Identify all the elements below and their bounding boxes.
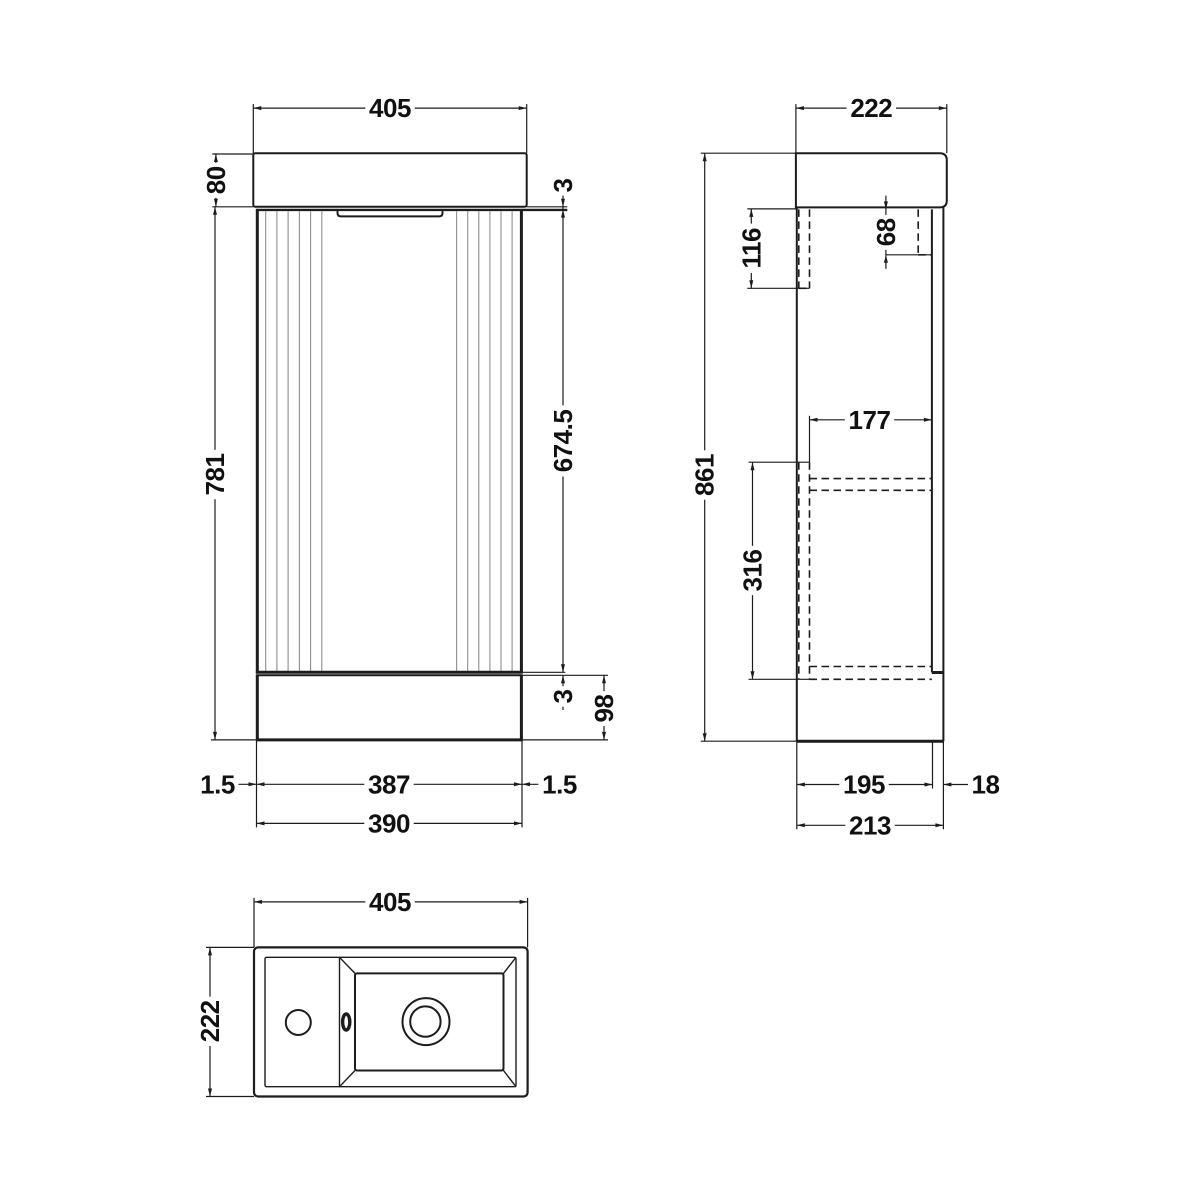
svg-text:195: 195 xyxy=(843,770,885,800)
svg-text:222: 222 xyxy=(195,1000,225,1042)
svg-text:390: 390 xyxy=(368,808,410,838)
svg-text:116: 116 xyxy=(736,228,766,268)
svg-text:1.5: 1.5 xyxy=(542,769,577,799)
svg-text:3: 3 xyxy=(548,689,578,703)
svg-text:387: 387 xyxy=(368,769,410,799)
svg-text:1.5: 1.5 xyxy=(200,769,235,799)
svg-text:18: 18 xyxy=(972,770,1000,800)
svg-text:80: 80 xyxy=(201,166,231,194)
svg-text:98: 98 xyxy=(589,695,619,723)
svg-text:674.5: 674.5 xyxy=(548,410,578,473)
svg-text:177: 177 xyxy=(849,405,891,435)
svg-text:222: 222 xyxy=(850,93,892,123)
svg-text:781: 781 xyxy=(200,454,230,496)
svg-text:213: 213 xyxy=(849,810,891,840)
svg-text:68: 68 xyxy=(871,218,901,246)
svg-text:861: 861 xyxy=(690,454,720,496)
svg-text:316: 316 xyxy=(738,550,768,592)
svg-text:405: 405 xyxy=(369,93,411,123)
svg-text:405: 405 xyxy=(369,887,411,917)
svg-text:3: 3 xyxy=(548,178,578,192)
